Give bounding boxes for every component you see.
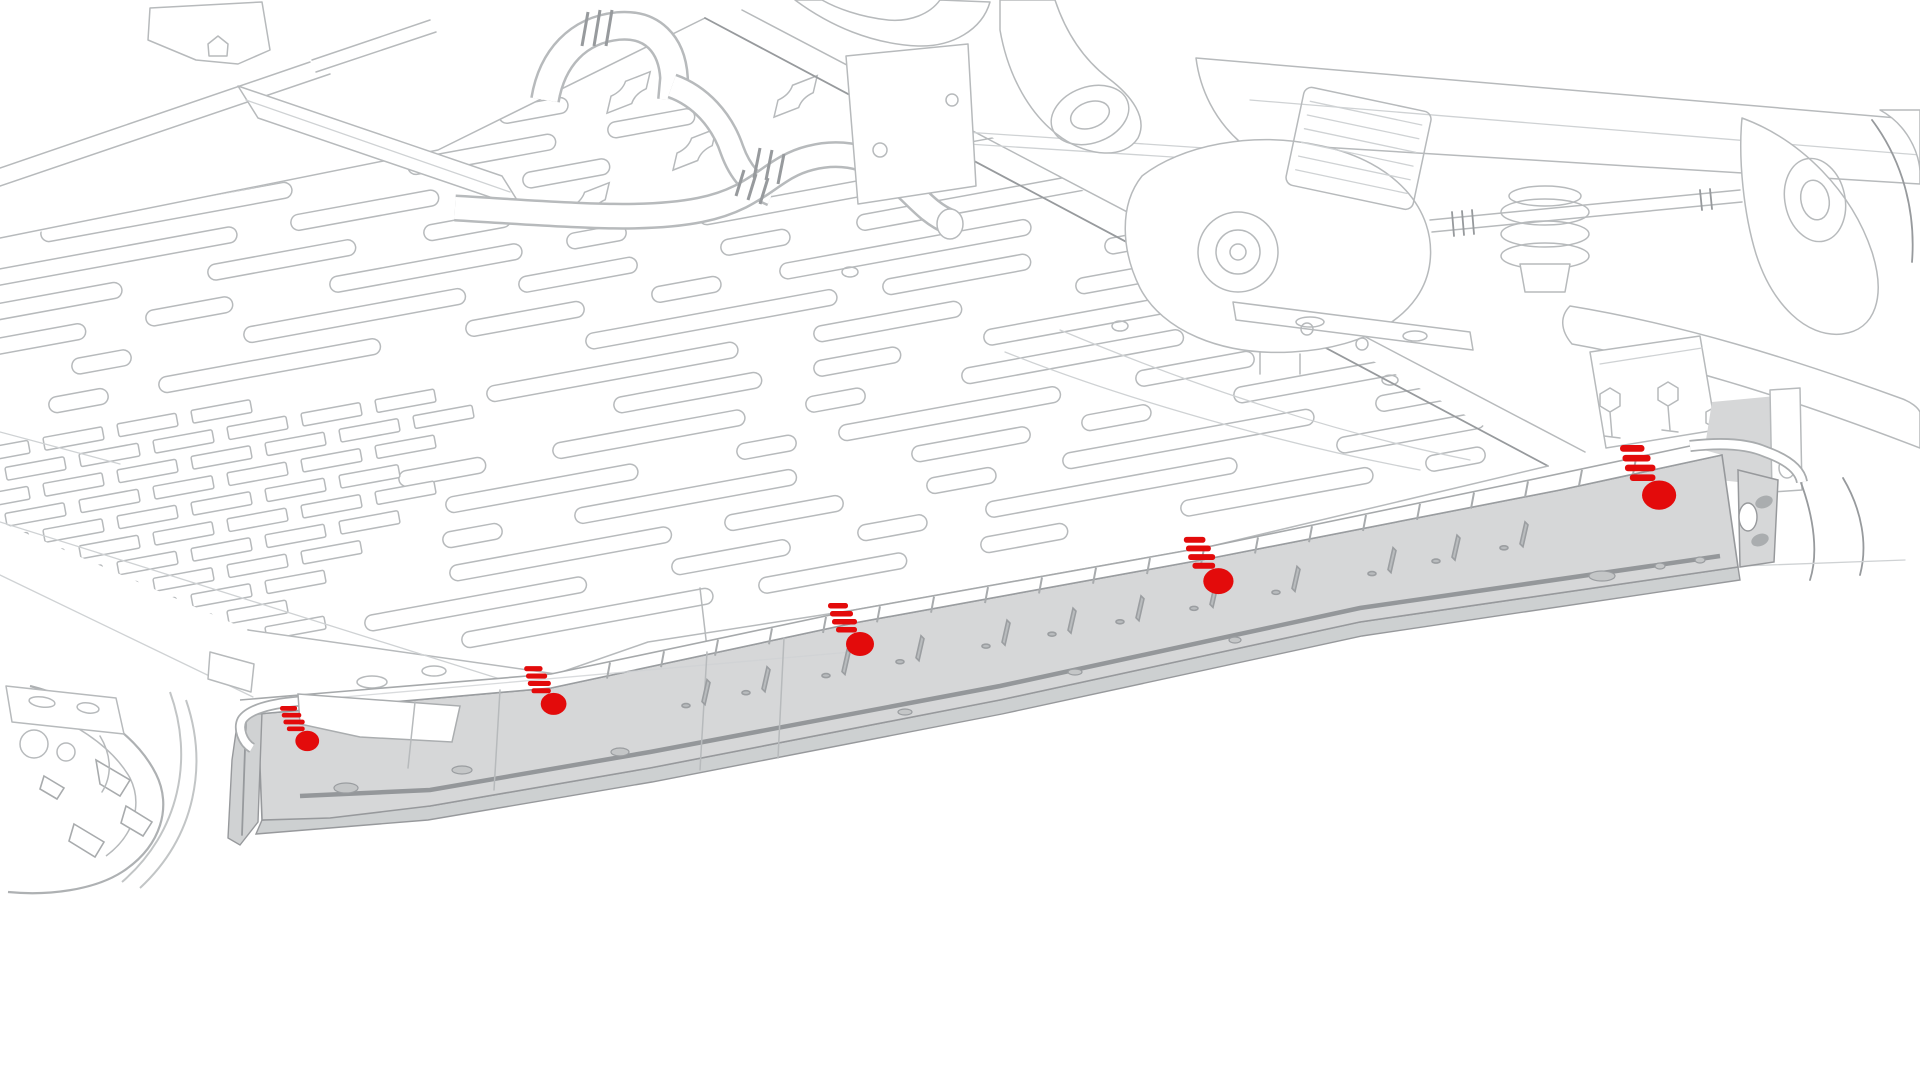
air-spring: [1501, 186, 1589, 292]
fender-flange: [1800, 478, 1863, 580]
bolt-icon: [1356, 338, 1368, 350]
subframe-mount-bracket: [1590, 336, 1716, 448]
end-cap-hole: [1739, 503, 1757, 531]
band-hole: [357, 676, 387, 688]
control-arm: [1000, 0, 1141, 153]
front-wheel: [6, 652, 254, 893]
band-hole: [422, 666, 446, 676]
halfshaft: [1430, 190, 1742, 232]
front-frame-rail: [0, 2, 522, 208]
corner-bracket: [208, 652, 254, 692]
underbody-illustration: [0, 0, 1920, 1080]
wheel-liner-edge: [122, 692, 196, 888]
mount-plate: [846, 44, 976, 204]
hose-end-fitting: [937, 209, 963, 239]
service-illustration-canvas: [0, 0, 1920, 1080]
upper-arm: [795, 0, 990, 46]
